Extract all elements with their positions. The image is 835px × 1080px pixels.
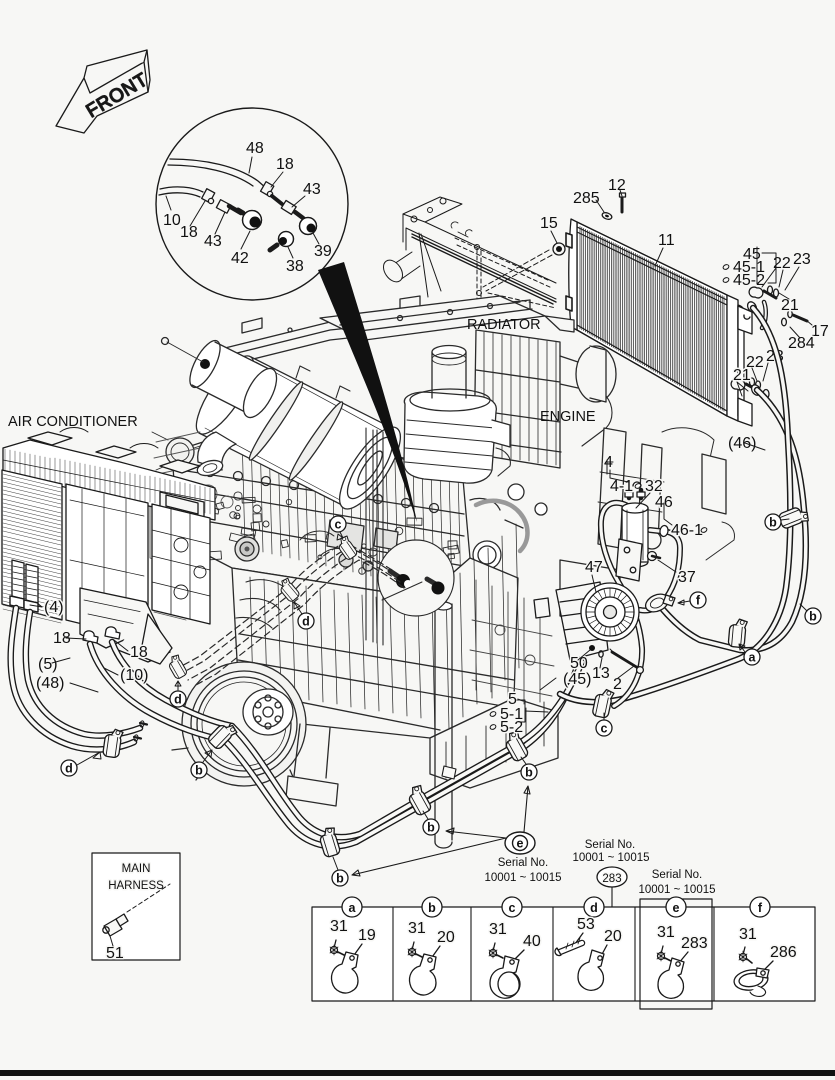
- svg-text:b: b: [769, 516, 777, 530]
- svg-text:10001 ~ 10015: 10001 ~ 10015: [484, 872, 561, 884]
- svg-text:43: 43: [303, 181, 321, 198]
- svg-text:(46): (46): [728, 435, 756, 452]
- svg-text:31: 31: [408, 920, 426, 937]
- svg-text:d: d: [65, 762, 73, 776]
- svg-text:18: 18: [130, 644, 148, 661]
- svg-text:10001 ~ 10015: 10001 ~ 10015: [572, 852, 649, 864]
- svg-text:b: b: [525, 766, 533, 780]
- svg-text:46-1: 46-1: [671, 522, 703, 539]
- svg-text:21: 21: [781, 297, 799, 314]
- svg-text:21: 21: [733, 367, 751, 384]
- svg-text:Serial No.: Serial No.: [585, 839, 636, 851]
- svg-text:20: 20: [437, 929, 455, 946]
- svg-text:40: 40: [523, 933, 541, 950]
- svg-text:b: b: [336, 872, 344, 886]
- svg-text:(5): (5): [38, 656, 58, 673]
- svg-text:283: 283: [681, 935, 708, 952]
- svg-text:23: 23: [793, 251, 811, 268]
- svg-text:ENGINE: ENGINE: [540, 409, 596, 425]
- svg-text:2: 2: [613, 676, 622, 693]
- svg-text:a: a: [749, 651, 757, 665]
- svg-text:51: 51: [106, 945, 124, 962]
- svg-text:53: 53: [577, 916, 595, 933]
- svg-text:45-2: 45-2: [733, 272, 765, 289]
- svg-text:48: 48: [246, 140, 264, 157]
- svg-text:HARNESS: HARNESS: [108, 880, 164, 892]
- svg-text:10001 ~ 10015: 10001 ~ 10015: [638, 884, 715, 896]
- svg-text:b: b: [195, 764, 203, 778]
- svg-text:MAIN: MAIN: [122, 863, 151, 875]
- svg-text:d: d: [590, 901, 598, 915]
- svg-text:38: 38: [286, 258, 304, 275]
- svg-text:a: a: [349, 901, 357, 915]
- svg-text:47: 47: [585, 559, 603, 576]
- svg-text:50: 50: [570, 655, 588, 672]
- svg-text:31: 31: [739, 926, 757, 943]
- svg-text:(10): (10): [120, 667, 148, 684]
- svg-text:AIR CONDITIONER: AIR CONDITIONER: [8, 414, 138, 430]
- svg-text:18: 18: [180, 224, 198, 241]
- svg-text:12: 12: [608, 177, 626, 194]
- svg-text:31: 31: [330, 918, 348, 935]
- svg-text:b: b: [427, 821, 435, 835]
- svg-text:RADIATOR: RADIATOR: [467, 317, 541, 333]
- svg-text:c: c: [509, 901, 516, 915]
- svg-text:32: 32: [645, 478, 663, 495]
- svg-text:(48): (48): [36, 675, 64, 692]
- svg-text:13: 13: [592, 665, 610, 682]
- svg-text:(45): (45): [563, 671, 591, 688]
- svg-text:42: 42: [231, 250, 249, 267]
- svg-text:286: 286: [770, 944, 797, 961]
- svg-text:284: 284: [788, 335, 815, 352]
- svg-text:19: 19: [358, 927, 376, 944]
- svg-text:b: b: [428, 901, 436, 915]
- svg-text:11: 11: [658, 232, 675, 249]
- svg-text:43: 43: [204, 233, 222, 250]
- svg-text:37: 37: [678, 569, 696, 586]
- svg-text:Serial No.: Serial No.: [652, 869, 703, 881]
- svg-text:e: e: [673, 901, 680, 915]
- svg-text:31: 31: [657, 924, 675, 941]
- svg-text:283: 283: [602, 873, 621, 885]
- svg-text:d: d: [302, 615, 310, 629]
- svg-text:Serial No.: Serial No.: [498, 857, 549, 869]
- svg-text:e: e: [517, 837, 524, 851]
- svg-text:c: c: [335, 518, 342, 532]
- svg-text:15: 15: [540, 215, 558, 232]
- svg-text:285: 285: [573, 190, 600, 207]
- svg-text:(4): (4): [44, 599, 64, 616]
- svg-text:b: b: [809, 610, 817, 624]
- svg-text:c: c: [601, 722, 608, 736]
- svg-text:31: 31: [489, 921, 507, 938]
- svg-text:10: 10: [163, 212, 181, 229]
- svg-text:18: 18: [276, 156, 294, 173]
- svg-text:d: d: [174, 693, 182, 707]
- svg-text:20: 20: [604, 928, 622, 945]
- svg-text:39: 39: [314, 243, 332, 260]
